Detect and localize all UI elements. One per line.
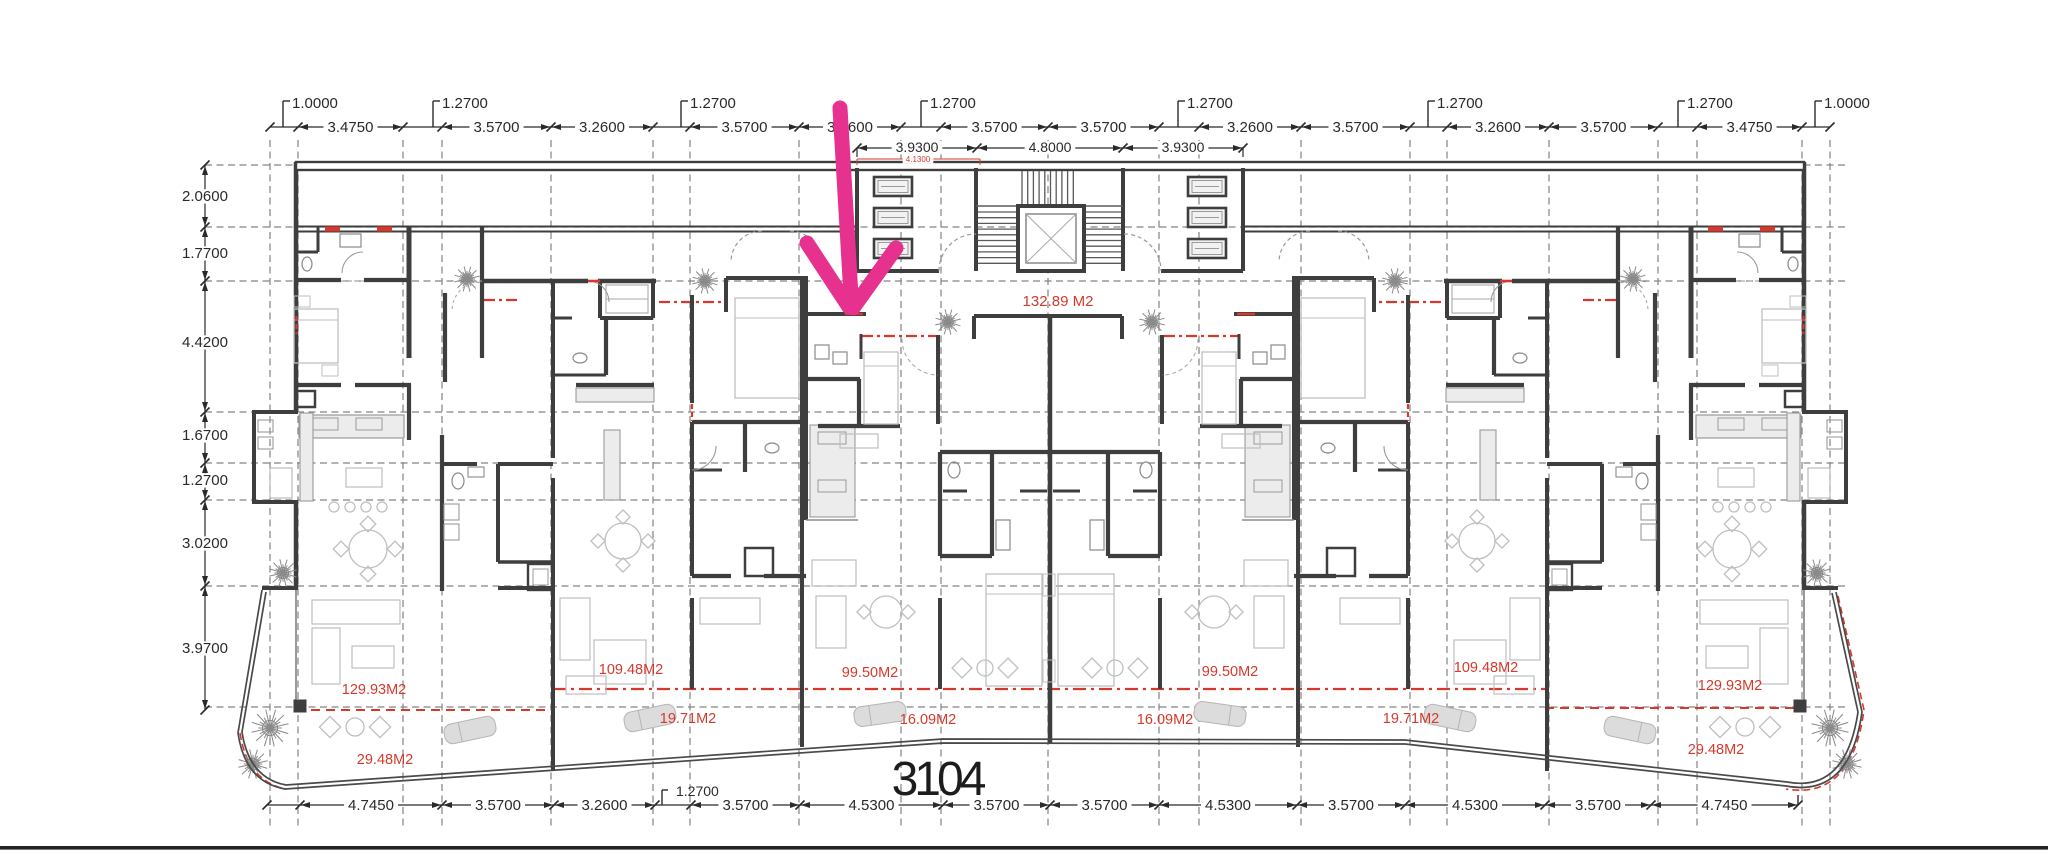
svg-text:3.5700: 3.5700 — [1081, 119, 1127, 136]
svg-text:99.50M2: 99.50M2 — [842, 665, 898, 681]
svg-text:16.09M2: 16.09M2 — [1137, 712, 1193, 728]
svg-text:1.7700: 1.7700 — [182, 245, 228, 262]
svg-text:3.9700: 3.9700 — [182, 640, 228, 657]
svg-text:3.5700: 3.5700 — [722, 119, 768, 136]
svg-text:3.2600: 3.2600 — [579, 119, 625, 136]
svg-text:4.8000: 4.8000 — [1029, 139, 1072, 155]
svg-text:3.0200: 3.0200 — [182, 535, 228, 552]
svg-text:3.5700: 3.5700 — [1581, 119, 1627, 136]
svg-text:4.7450: 4.7450 — [348, 797, 394, 814]
svg-text:3.2600: 3.2600 — [1475, 119, 1521, 136]
svg-text:3.5700: 3.5700 — [1575, 797, 1621, 814]
svg-text:1.2700: 1.2700 — [442, 95, 488, 112]
svg-text:16.09M2: 16.09M2 — [900, 712, 956, 728]
svg-text:19.71M2: 19.71M2 — [660, 711, 716, 727]
svg-text:3.5700: 3.5700 — [1333, 119, 1379, 136]
svg-text:4.5300: 4.5300 — [1452, 797, 1498, 814]
svg-text:1.0000: 1.0000 — [292, 95, 338, 112]
svg-text:2.0600: 2.0600 — [182, 188, 228, 205]
svg-text:29.48M2: 29.48M2 — [1688, 742, 1744, 758]
svg-text:3.2600: 3.2600 — [582, 797, 628, 814]
svg-text:1.2700: 1.2700 — [182, 472, 228, 489]
svg-text:99.50M2: 99.50M2 — [1202, 664, 1258, 680]
svg-text:4.5300: 4.5300 — [1205, 797, 1251, 814]
svg-text:129.93M2: 129.93M2 — [342, 682, 407, 698]
svg-text:3.5700: 3.5700 — [474, 119, 520, 136]
svg-text:1.0000: 1.0000 — [1824, 95, 1870, 112]
svg-text:109.48M2: 109.48M2 — [599, 662, 664, 678]
svg-text:3.9300: 3.9300 — [896, 139, 939, 155]
svg-text:3.9300: 3.9300 — [1162, 139, 1205, 155]
svg-text:3104: 3104 — [892, 753, 986, 806]
svg-text:3.2600: 3.2600 — [1227, 119, 1273, 136]
svg-text:3.5700: 3.5700 — [723, 797, 769, 814]
svg-text:132.89 M2: 132.89 M2 — [1023, 293, 1094, 310]
svg-text:3.5700: 3.5700 — [1328, 797, 1374, 814]
svg-text:29.48M2: 29.48M2 — [357, 752, 413, 768]
svg-text:3.5700: 3.5700 — [475, 797, 521, 814]
svg-text:4.1300: 4.1300 — [906, 155, 931, 164]
svg-text:1.2700: 1.2700 — [1187, 95, 1233, 112]
svg-text:1.6700: 1.6700 — [182, 427, 228, 444]
svg-text:3.5700: 3.5700 — [1082, 797, 1128, 814]
svg-text:3.4750: 3.4750 — [1727, 119, 1773, 136]
svg-text:19.71M2: 19.71M2 — [1383, 711, 1439, 727]
svg-text:3.4750: 3.4750 — [328, 119, 374, 136]
svg-text:1.2700: 1.2700 — [690, 95, 736, 112]
svg-text:1.2700: 1.2700 — [1687, 95, 1733, 112]
svg-text:109.48M2: 109.48M2 — [1454, 660, 1519, 676]
svg-text:129.93M2: 129.93M2 — [1698, 678, 1763, 694]
svg-text:4.4200: 4.4200 — [182, 334, 228, 351]
svg-text:4.7450: 4.7450 — [1702, 797, 1748, 814]
svg-text:1.2700: 1.2700 — [676, 783, 719, 799]
svg-text:1.2700: 1.2700 — [930, 95, 976, 112]
svg-text:1.2700: 1.2700 — [1437, 95, 1483, 112]
svg-text:3.5700: 3.5700 — [972, 119, 1018, 136]
svg-text:4.5300: 4.5300 — [849, 797, 895, 814]
